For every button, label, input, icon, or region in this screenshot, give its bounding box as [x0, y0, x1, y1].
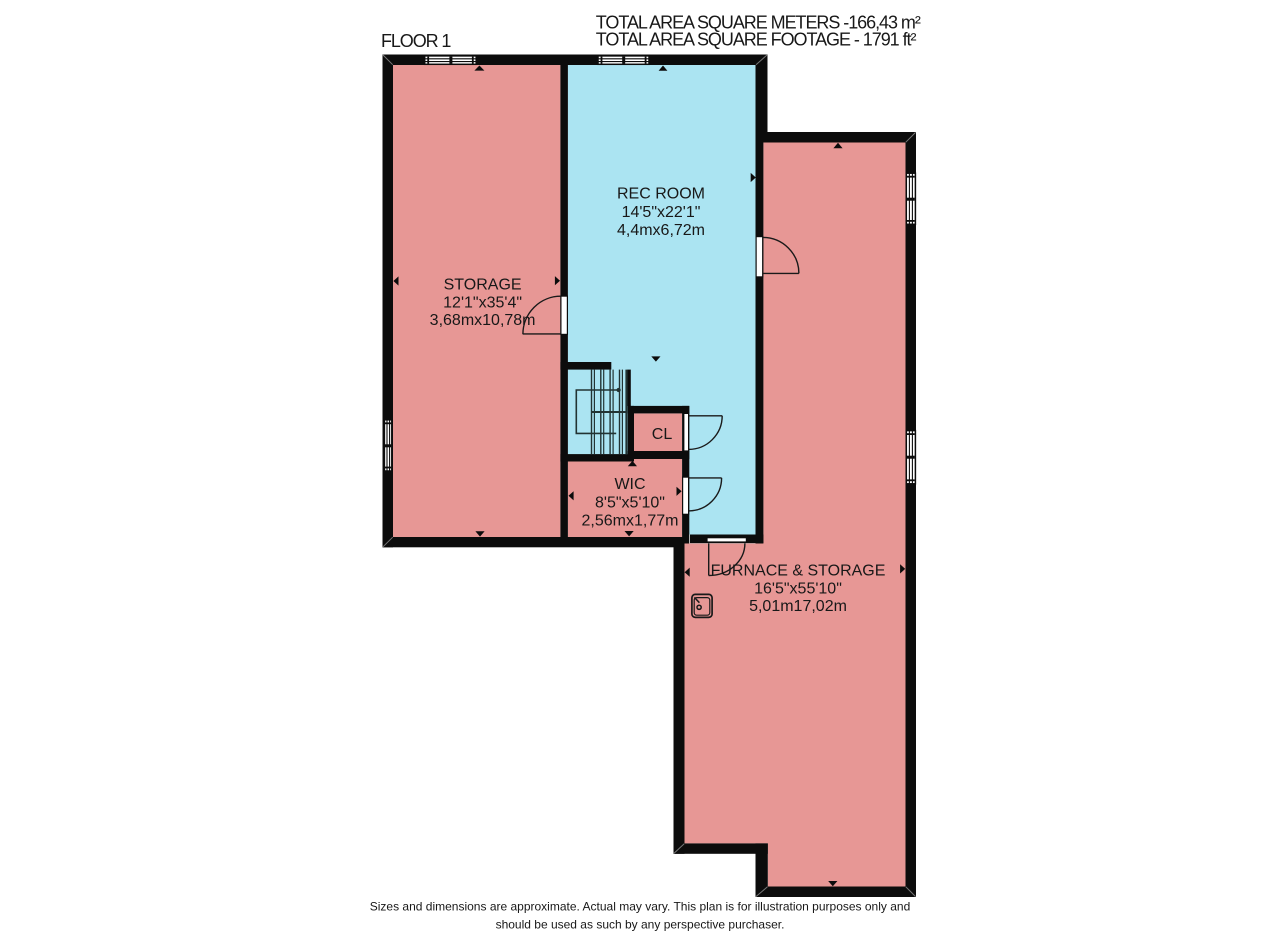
svg-text:REC ROOM: REC ROOM — [617, 186, 705, 203]
svg-text:CL: CL — [652, 426, 673, 443]
svg-text:WIC: WIC — [614, 476, 645, 493]
svg-text:STORAGE: STORAGE — [444, 277, 522, 294]
svg-text:3,68mx10,78m: 3,68mx10,78m — [430, 312, 536, 329]
svg-text:should be used as such by any: should be used as such by any perspectiv… — [496, 917, 785, 931]
svg-text:2,56mx1,77m: 2,56mx1,77m — [582, 512, 679, 529]
svg-text:8'5"x5'10": 8'5"x5'10" — [595, 494, 665, 511]
svg-text:TOTAL AREA SQUARE FOOTAGE - 17: TOTAL AREA SQUARE FOOTAGE - 1791 ft² — [596, 30, 917, 50]
svg-text:FLOOR 1: FLOOR 1 — [381, 31, 451, 51]
svg-text:Sizes and dimensions are appro: Sizes and dimensions are approximate. Ac… — [370, 899, 911, 913]
svg-text:FURNACE & STORAGE: FURNACE & STORAGE — [711, 563, 886, 580]
svg-text:14'5"x22'1": 14'5"x22'1" — [622, 204, 701, 221]
svg-text:12'1"x35'4": 12'1"x35'4" — [443, 294, 522, 311]
svg-text:4,4mx6,72m: 4,4mx6,72m — [617, 222, 705, 239]
svg-text:16'5"x55'10": 16'5"x55'10" — [754, 580, 842, 597]
svg-text:5,01m17,02m: 5,01m17,02m — [749, 598, 847, 615]
